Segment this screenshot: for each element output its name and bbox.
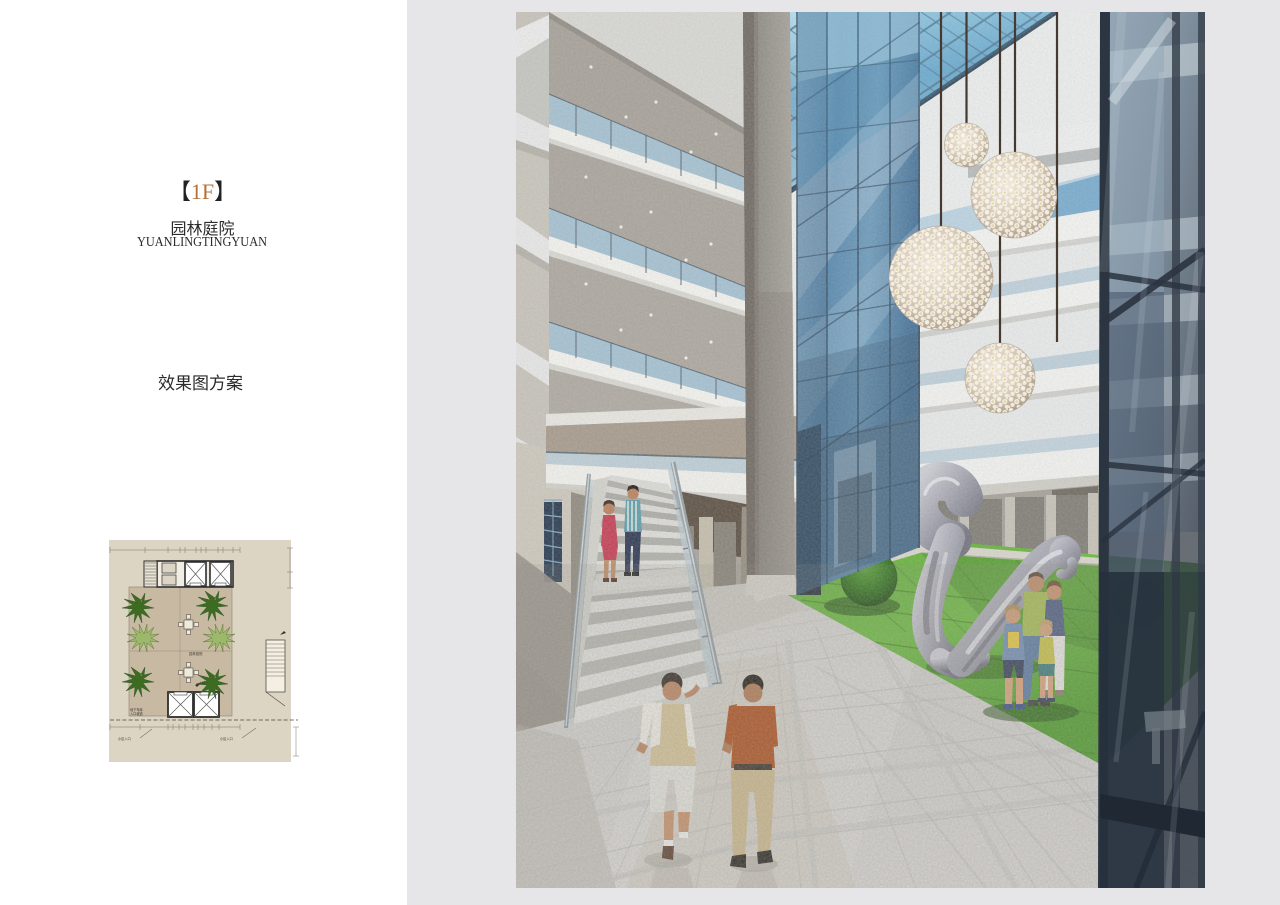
- svg-text:园林庭院: 园林庭院: [189, 651, 203, 656]
- svg-text:入口坡道: 入口坡道: [130, 711, 144, 716]
- svg-text:入口: 入口: [199, 681, 205, 685]
- svg-text:小区入口: 小区入口: [118, 736, 131, 741]
- svg-text:小区入口: 小区入口: [220, 736, 233, 741]
